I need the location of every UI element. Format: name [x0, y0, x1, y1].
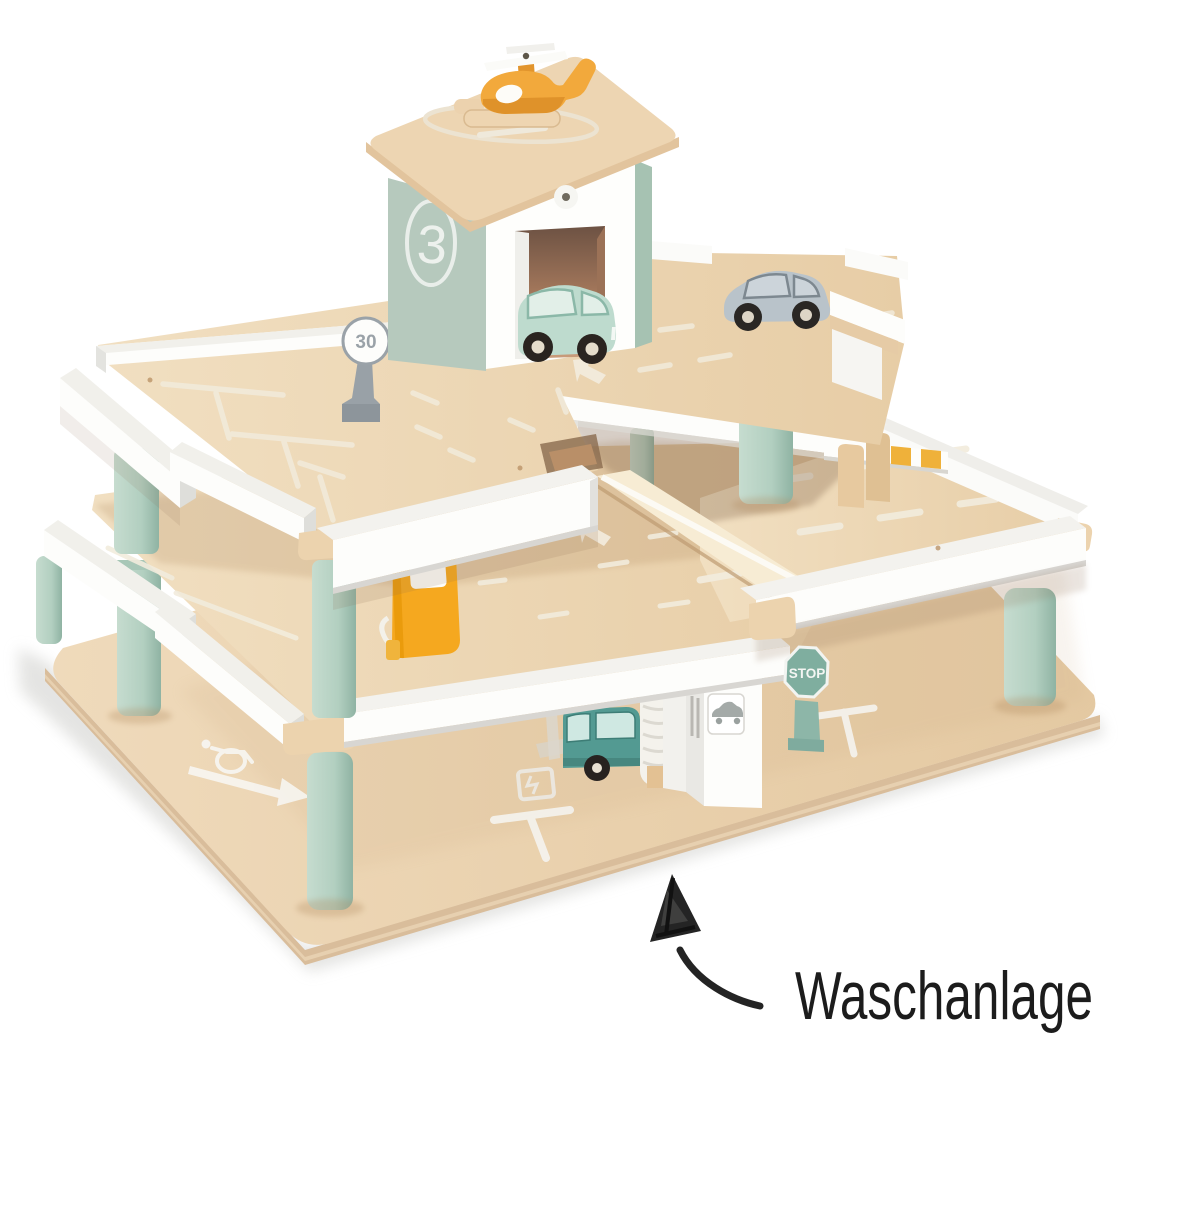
svg-text:30: 30	[355, 332, 376, 353]
svg-text:Waschanlage: Waschanlage	[795, 958, 1093, 1034]
svg-text:STOP: STOP	[789, 666, 826, 681]
svg-text:3: 3	[415, 214, 448, 275]
